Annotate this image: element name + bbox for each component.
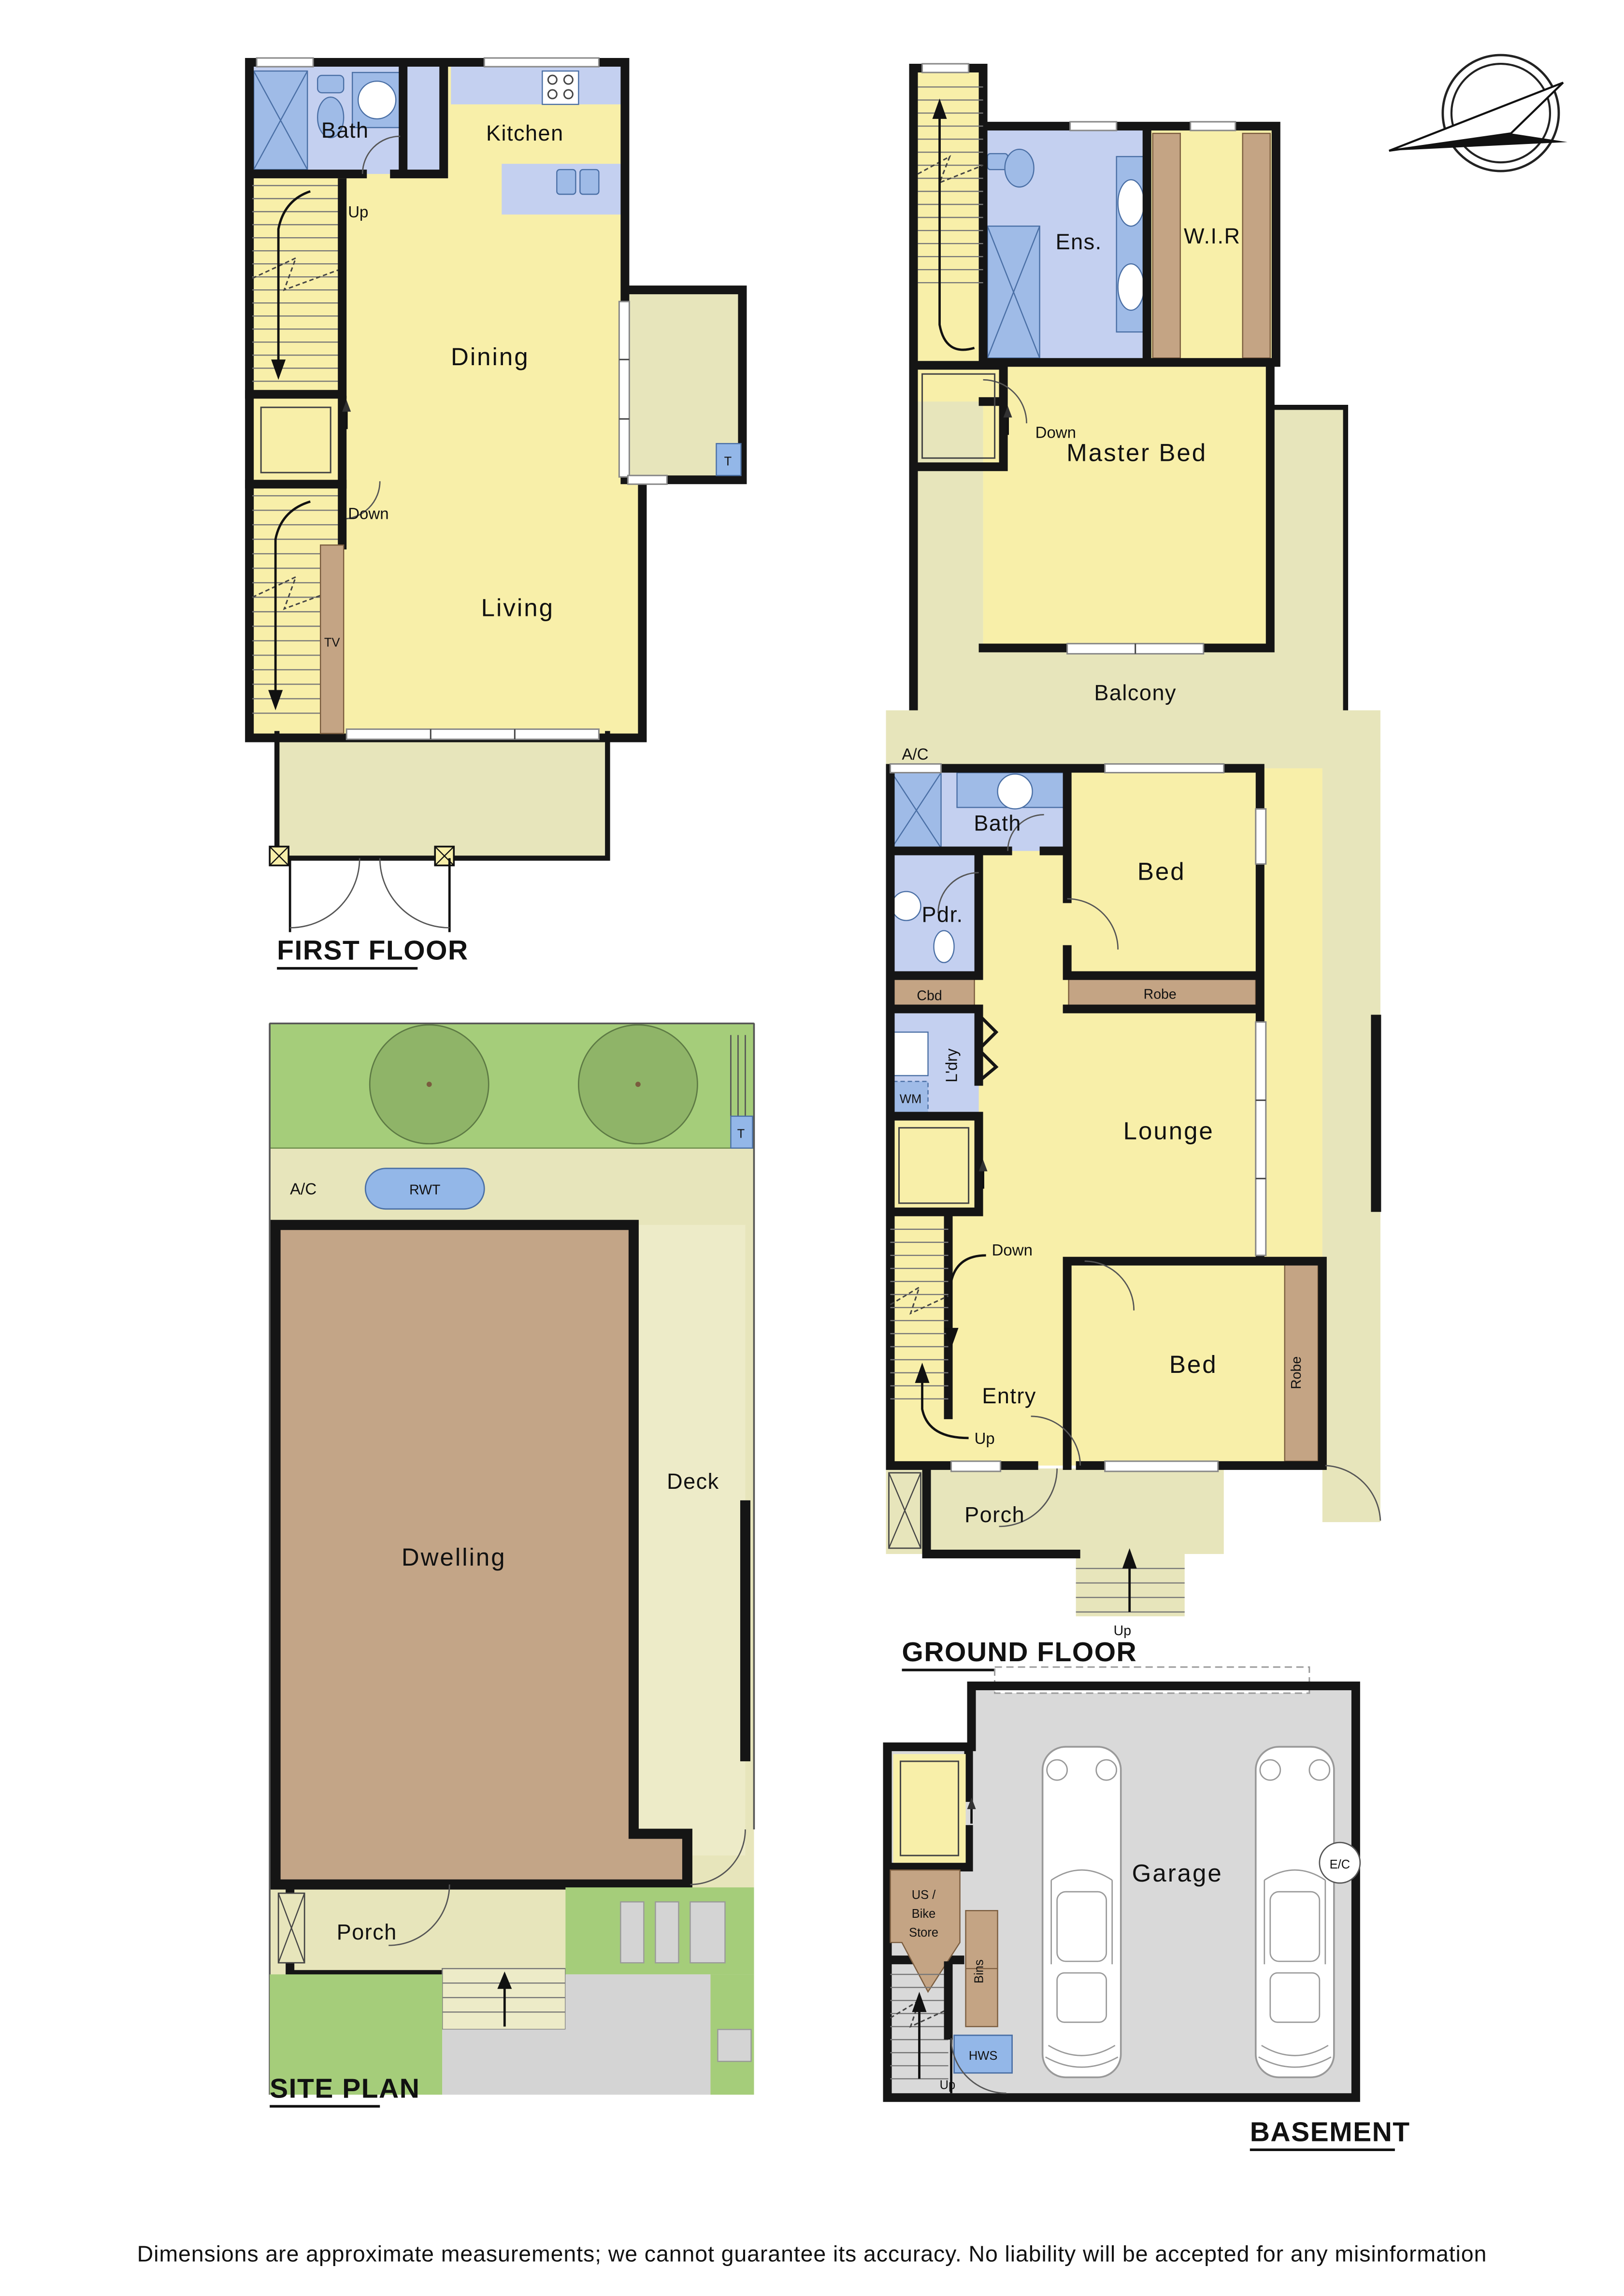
window xyxy=(951,1461,1001,1471)
wardrobe-left xyxy=(1153,133,1180,358)
window xyxy=(1105,764,1224,772)
path-pad xyxy=(718,2029,751,2061)
kitchen-label: Kitchen xyxy=(486,121,564,145)
master-bed-label: Master Bed xyxy=(1066,439,1207,466)
site-steps xyxy=(442,1968,565,2029)
floorplan-page: Up Down TV T xyxy=(0,0,1624,2296)
lounge-label: Lounge xyxy=(1123,1117,1214,1145)
master-bed-floor xyxy=(983,362,1270,648)
second-floor-plan: Down Ens. W.I.R Master Bed Balcony SECON… xyxy=(914,64,1346,787)
sink2-icon xyxy=(580,170,599,194)
first-floor-plan: Up Down TV T xyxy=(249,58,742,969)
disclaimer-text: Dimensions are approximate measurements;… xyxy=(137,2241,1487,2266)
bins-label: Bins xyxy=(973,1959,986,1983)
window xyxy=(257,58,313,67)
window xyxy=(922,64,969,72)
tree2-icon xyxy=(578,1025,697,1144)
dining-label: Dining xyxy=(451,343,530,371)
deck-floor xyxy=(633,1225,745,1855)
cbd-label: Cbd xyxy=(917,988,942,1004)
stove-icon xyxy=(542,71,578,104)
store-label-1: US / xyxy=(912,1888,936,1902)
window xyxy=(1070,122,1117,130)
basin2-icon xyxy=(1118,264,1144,310)
wardrobe-right xyxy=(1243,133,1270,358)
pdr-toilet-icon xyxy=(934,931,954,963)
first-floor-balcony xyxy=(277,733,607,858)
down-label: Down xyxy=(348,504,388,522)
sliding-window xyxy=(346,729,599,739)
hws-label: HWS xyxy=(969,2049,998,2063)
ldry-label: L'dry xyxy=(943,1048,961,1083)
living-label: Living xyxy=(481,594,554,621)
floorplan-canvas: Up Down TV T xyxy=(0,0,1624,2296)
wir-label: W.I.R xyxy=(1184,224,1241,248)
compass-icon xyxy=(1389,55,1567,171)
paving-pads xyxy=(620,1902,725,1963)
porch-floor xyxy=(886,1469,1224,1554)
wm-label: WM xyxy=(900,1093,921,1106)
t-label: T xyxy=(737,1127,745,1141)
garage-label: Garage xyxy=(1132,1859,1223,1887)
french-doors xyxy=(290,858,449,932)
t-label: T xyxy=(724,455,732,468)
driveway xyxy=(442,2029,710,2095)
toilet-cistern-icon xyxy=(317,75,344,93)
site-plan: T A/C RWT Up xyxy=(270,1024,754,2107)
bath-label: Bath xyxy=(974,811,1021,836)
toilet-icon xyxy=(1005,149,1034,187)
bed1-label: Bed xyxy=(1137,858,1186,885)
up-label: Up xyxy=(975,1429,995,1447)
ac-label: A/C xyxy=(902,745,929,763)
ground-floor-title: GROUND FLOOR xyxy=(902,1637,1137,1668)
kitchen-bench-top xyxy=(451,67,625,104)
store-label-3: Store xyxy=(909,1926,938,1939)
car-left xyxy=(1043,1747,1121,2077)
up-label: Up xyxy=(940,2078,956,2092)
window xyxy=(1256,809,1266,864)
robe2-label: Robe xyxy=(1289,1356,1304,1389)
basement-title: BASEMENT xyxy=(1250,2116,1410,2147)
sliding-door xyxy=(1256,1022,1266,1255)
up-label: Up xyxy=(348,203,368,221)
basement-plan: US / Bike Store Bins HWS Up E/C Garage B… xyxy=(888,1667,1410,2150)
tree-icon xyxy=(370,1025,489,1144)
ac-label: A/C xyxy=(290,1180,316,1198)
store-room-floor xyxy=(893,1754,966,1863)
basin-icon xyxy=(358,81,396,119)
balcony-label: Balcony xyxy=(1094,680,1177,705)
basin-icon xyxy=(1118,180,1144,226)
site-plan-title: SITE PLAN xyxy=(270,2073,420,2104)
store-label-2: Bike xyxy=(912,1907,936,1921)
car-right xyxy=(1256,1747,1334,2077)
pdr-label: Pdr. xyxy=(922,902,963,927)
window xyxy=(1105,1461,1218,1471)
porch-label: Porch xyxy=(337,1920,397,1944)
ac-window xyxy=(891,764,941,772)
window xyxy=(484,58,599,67)
pdr-basin-icon xyxy=(892,892,921,921)
porch-post xyxy=(278,1893,304,1963)
porch-post xyxy=(889,1473,921,1548)
down-label: Down xyxy=(992,1241,1033,1259)
bath-label: Bath xyxy=(321,118,369,143)
laundry-tub-icon xyxy=(893,1032,928,1076)
first-floor-title: FIRST FLOOR xyxy=(277,935,468,966)
entry-label: Entry xyxy=(982,1383,1036,1408)
sink-icon xyxy=(557,170,575,194)
ground-floor-plan: A/C Down Up xyxy=(886,710,1380,1670)
driveway2 xyxy=(565,1974,710,2032)
porch-label: Porch xyxy=(964,1502,1025,1527)
dwelling-label: Dwelling xyxy=(402,1543,506,1571)
ens-label: Ens. xyxy=(1056,229,1102,254)
bed2-label: Bed xyxy=(1169,1351,1218,1378)
ec-label: E/C xyxy=(1330,1858,1351,1871)
basin-icon xyxy=(998,774,1033,809)
deck-label: Deck xyxy=(667,1469,719,1494)
robe1-label: Robe xyxy=(1144,987,1177,1002)
hall-nook xyxy=(403,67,444,174)
rwt-label: RWT xyxy=(409,1183,440,1198)
sliding-door xyxy=(619,301,629,477)
window xyxy=(1191,122,1236,130)
tv-label: TV xyxy=(324,636,340,649)
window xyxy=(628,475,667,484)
